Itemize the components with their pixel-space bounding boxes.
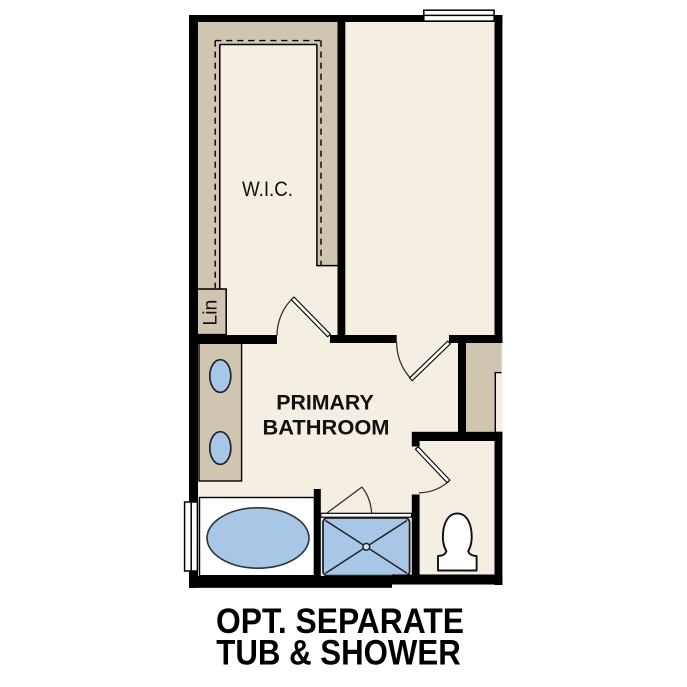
svg-text:PRIMARY: PRIMARY [276,391,374,414]
svg-text:Lin: Lin [200,300,222,326]
svg-text:BATHROOM: BATHROOM [263,416,390,439]
svg-text:W.I.C.: W.I.C. [242,178,293,201]
svg-text:TUB & SHOWER: TUB & SHOWER [216,633,461,672]
